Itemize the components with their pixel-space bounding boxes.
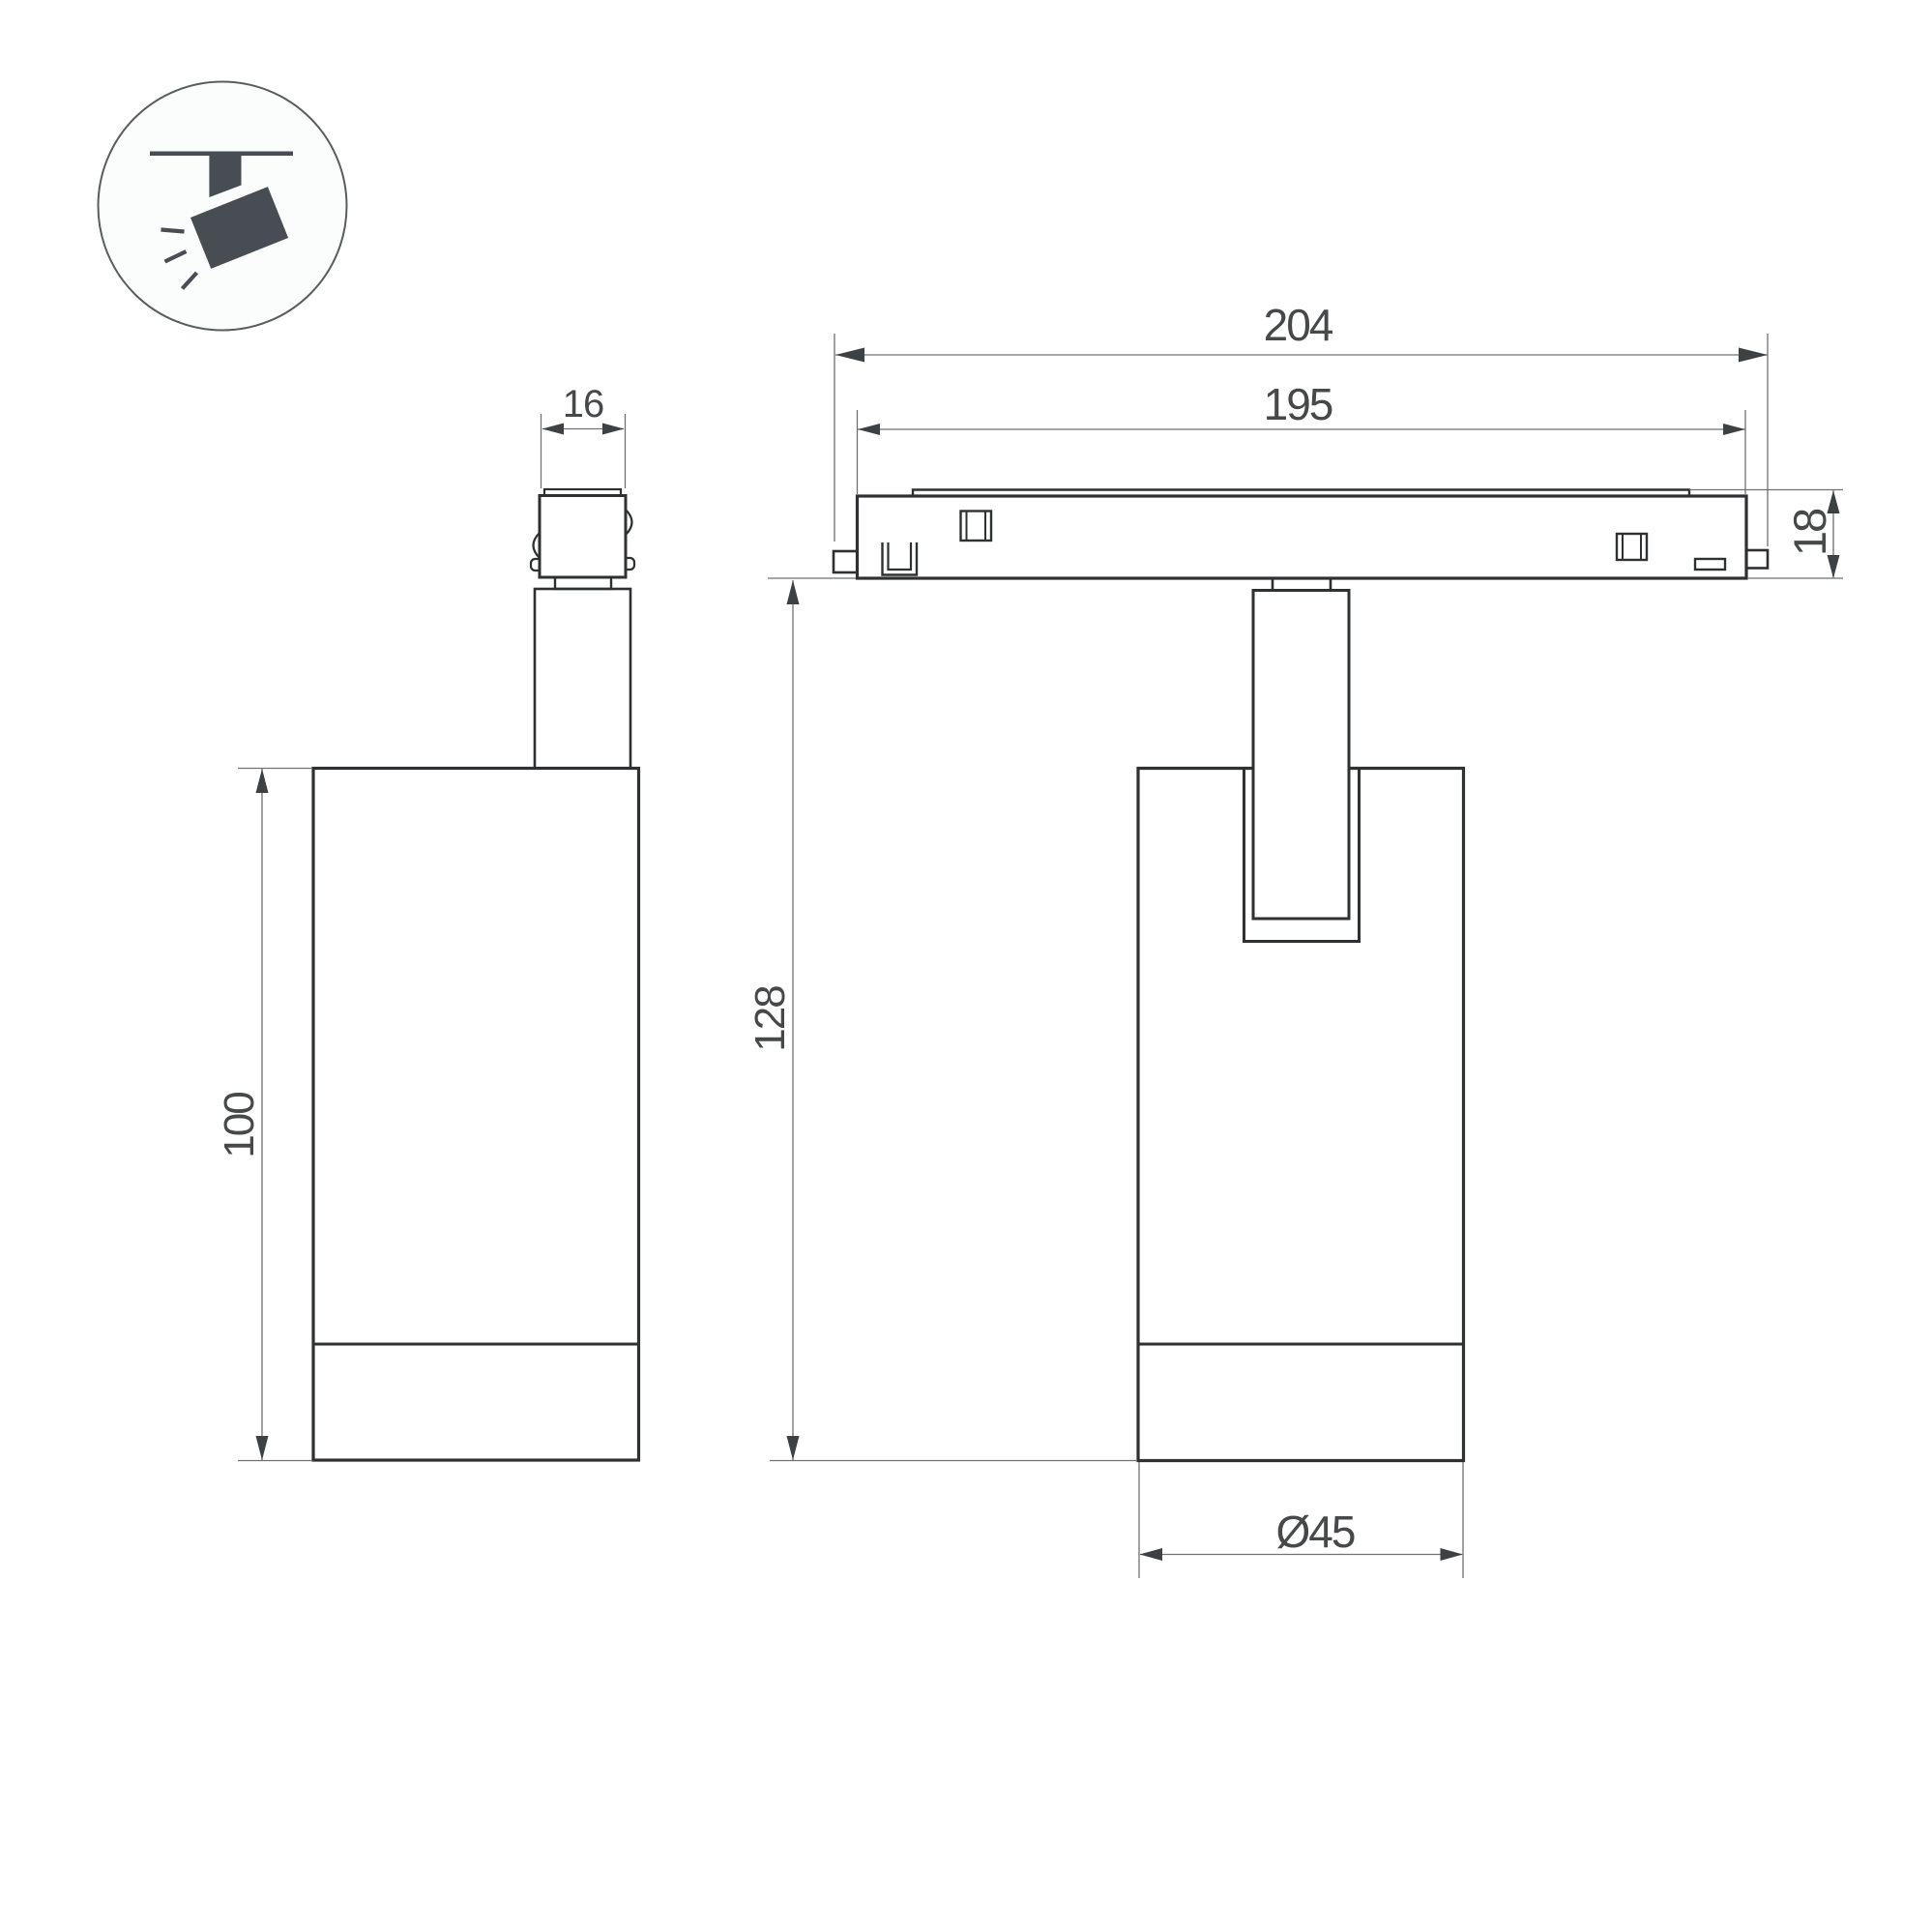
svg-text:18: 18 [1784, 509, 1835, 556]
svg-text:195: 195 [1264, 379, 1332, 429]
svg-text:Ø45: Ø45 [1276, 1507, 1355, 1557]
svg-text:100: 100 [216, 1093, 263, 1158]
svg-text:128: 128 [746, 986, 794, 1052]
svg-text:204: 204 [1264, 300, 1333, 350]
svg-text:16: 16 [563, 383, 604, 425]
